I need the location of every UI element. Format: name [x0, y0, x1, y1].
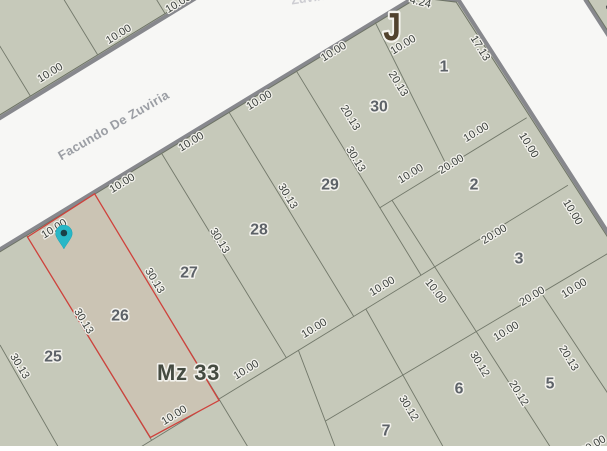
svg-text:28: 28 — [250, 222, 268, 239]
svg-text:29: 29 — [321, 177, 339, 194]
svg-text:1: 1 — [440, 59, 449, 76]
svg-text:5: 5 — [546, 376, 555, 393]
svg-text:7: 7 — [382, 423, 391, 440]
svg-text:3: 3 — [515, 251, 524, 268]
svg-text:Mz 33: Mz 33 — [157, 360, 220, 385]
svg-text:30: 30 — [370, 99, 388, 116]
svg-text:6: 6 — [455, 381, 464, 398]
svg-text:25: 25 — [44, 349, 62, 366]
svg-text:27: 27 — [180, 265, 198, 282]
svg-text:2: 2 — [470, 177, 479, 194]
svg-text:26: 26 — [111, 308, 129, 325]
svg-text:J: J — [383, 6, 401, 49]
